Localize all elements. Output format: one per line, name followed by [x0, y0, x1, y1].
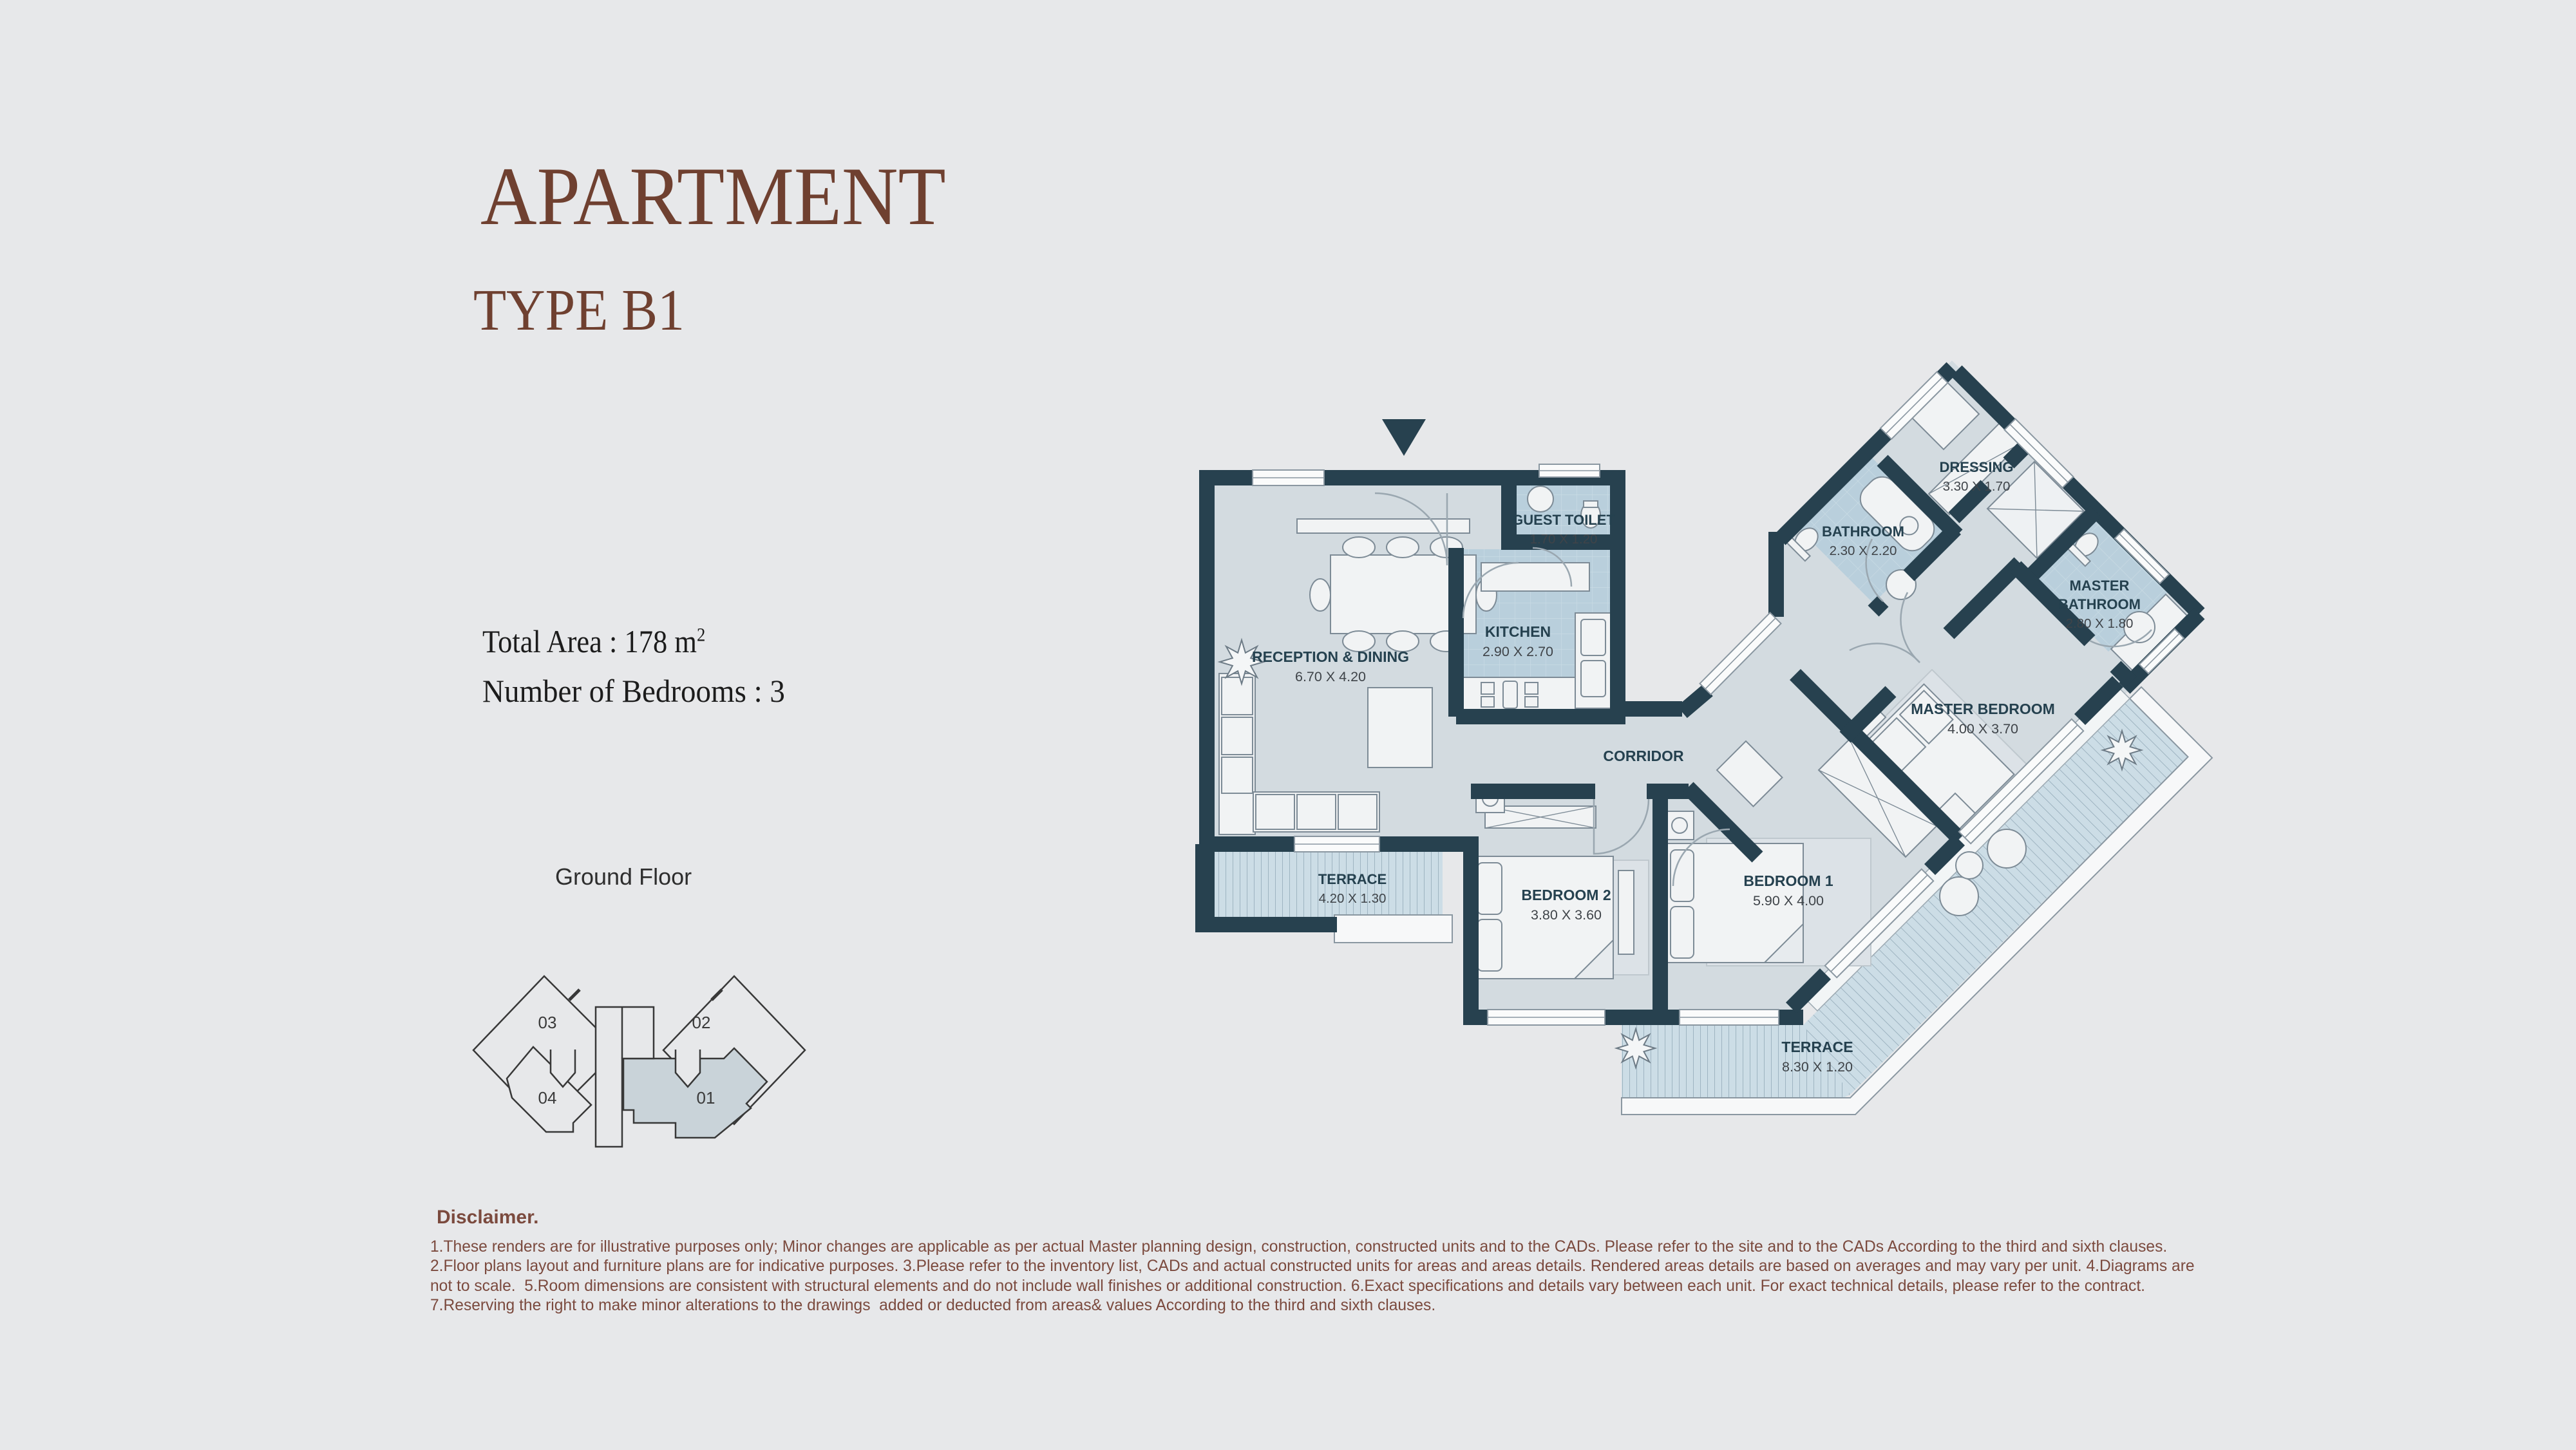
svg-text:DRESSING: DRESSING: [1940, 459, 2014, 475]
svg-text:TERRACE: TERRACE: [1781, 1039, 1853, 1055]
svg-text:01: 01: [697, 1088, 715, 1107]
svg-text:3.80 X 3.60: 3.80 X 3.60: [1531, 907, 1602, 923]
svg-text:8.30 X 1.20: 8.30 X 1.20: [1782, 1059, 1853, 1075]
svg-text:BATHROOM: BATHROOM: [1822, 523, 1904, 540]
svg-text:6.70 X 4.20: 6.70 X 4.20: [1295, 669, 1366, 684]
svg-text:1.70 X 1.20: 1.70 X 1.20: [1530, 532, 1598, 547]
svg-text:GUEST TOILET: GUEST TOILET: [1512, 512, 1615, 528]
svg-text:4.20 X 1.30: 4.20 X 1.30: [1319, 891, 1387, 906]
svg-text:2.30 X 2.20: 2.30 X 2.20: [1830, 543, 1897, 558]
svg-text:2.90 X 2.70: 2.90 X 2.70: [1482, 644, 1553, 659]
svg-text:KITCHEN: KITCHEN: [1485, 623, 1551, 640]
svg-text:TERRACE: TERRACE: [1318, 871, 1387, 887]
svg-text:3.30 X 1.70: 3.30 X 1.70: [1943, 479, 2011, 494]
svg-text:2.80 X 1.80: 2.80 X 1.80: [2066, 616, 2134, 631]
svg-text:CORRIDOR: CORRIDOR: [1603, 748, 1684, 764]
svg-text:02: 02: [692, 1013, 711, 1032]
svg-text:04: 04: [538, 1088, 557, 1107]
svg-text:03: 03: [538, 1013, 557, 1032]
svg-text:BATHROOM: BATHROOM: [2058, 596, 2141, 612]
svg-text:BEDROOM 1: BEDROOM 1: [1743, 872, 1833, 889]
svg-text:BEDROOM 2: BEDROOM 2: [1521, 887, 1611, 903]
svg-text:RECEPTION & DINING: RECEPTION & DINING: [1252, 648, 1409, 665]
svg-text:5.90 X 4.00: 5.90 X 4.00: [1753, 893, 1824, 909]
svg-text:MASTER: MASTER: [2070, 578, 2130, 594]
svg-text:MASTER BEDROOM: MASTER BEDROOM: [1911, 701, 2055, 717]
svg-text:4.00 X 3.70: 4.00 X 3.70: [1947, 721, 2018, 737]
